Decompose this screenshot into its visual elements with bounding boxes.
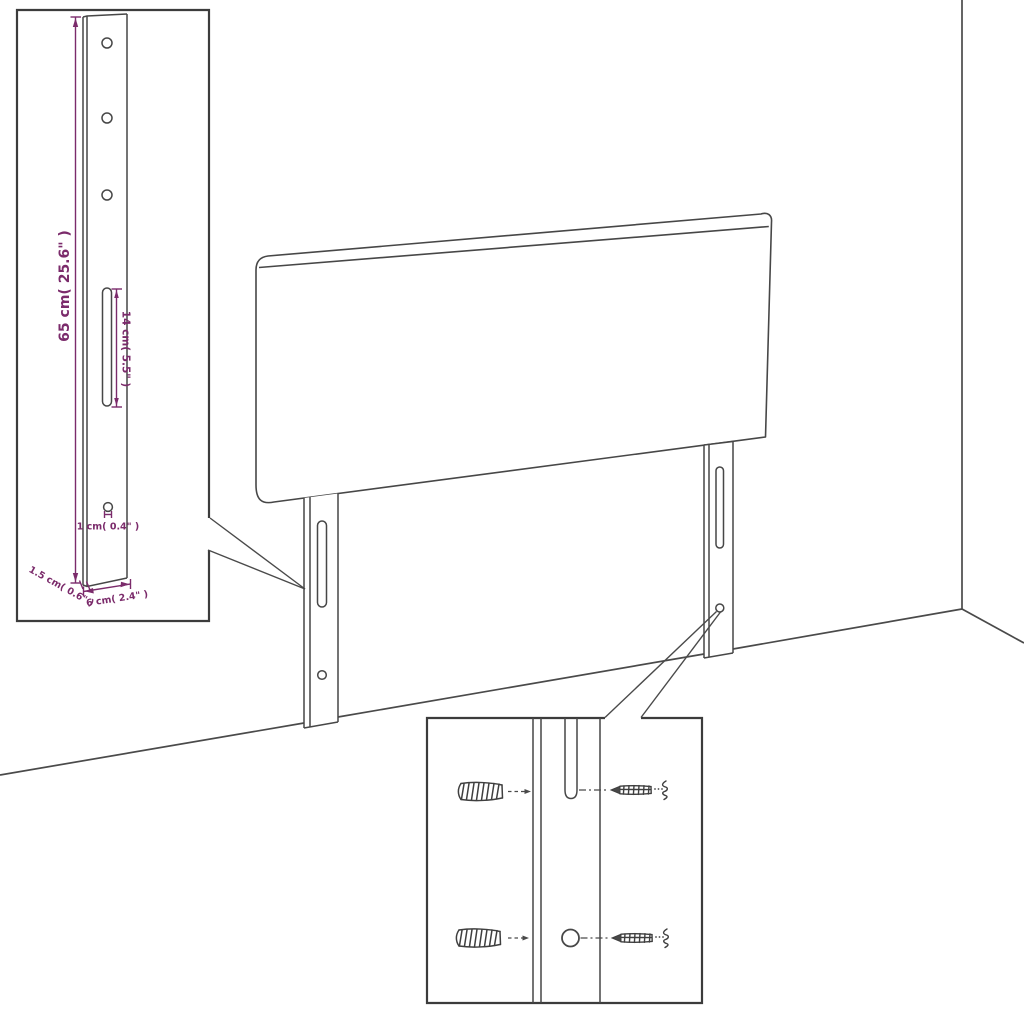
hardware-leg-strip	[533, 718, 600, 1003]
leg-detail-callout-wedge	[208, 518, 305, 589]
plug-guide-bottom-arrow	[523, 936, 530, 941]
alignment-guides	[508, 789, 609, 941]
width-dimension-label: 6 cm( 2.4" )	[85, 589, 148, 609]
diagram-page: 65 cm( 25.6" ) 14 cm( 5.5" ) 1 cm( 0.4" …	[0, 0, 1024, 1024]
hole-dimension-label: 1 cm( 0.4" )	[77, 522, 140, 533]
hardware-callout-wedge	[605, 612, 721, 718]
floor-line-right-wall	[962, 609, 1024, 643]
screw-top	[611, 781, 667, 800]
detail-leg-hole-1	[102, 38, 112, 48]
leg-detail-drawing	[83, 14, 127, 587]
height-dimension-label: 65 cm( 25.6" )	[57, 230, 73, 342]
floor-line-right-segment	[733, 609, 962, 649]
strip-slot	[565, 718, 577, 799]
dimension-marks	[71, 17, 131, 597]
wall-plug-top	[458, 782, 502, 800]
slot-dimension-label: 14 cm( 5.5" )	[120, 311, 132, 387]
detail-leg-top-edge	[83, 14, 127, 17]
floor-line-left-segment	[0, 723, 304, 775]
hardware-detail-inset	[427, 612, 721, 1004]
left-mounting-leg	[304, 494, 338, 729]
strip-hole	[562, 930, 579, 947]
wall-plug-bottom	[456, 929, 500, 947]
plug-guide-top-arrow	[525, 789, 532, 794]
right-mounting-leg	[704, 441, 733, 658]
detail-leg-small-hole	[104, 503, 113, 512]
detail-leg-hole-2	[102, 113, 112, 123]
left-leg-face	[304, 494, 338, 729]
fasteners	[456, 781, 668, 948]
screw-bottom	[612, 929, 668, 948]
detail-leg-hole-3	[102, 190, 112, 200]
headboard-panel-outline	[256, 213, 772, 502]
headboard	[256, 213, 772, 502]
headboard-diagram-canvas: 65 cm( 25.6" ) 14 cm( 5.5" ) 1 cm( 0.4" …	[0, 0, 1024, 1024]
detail-leg-slot	[103, 288, 112, 406]
